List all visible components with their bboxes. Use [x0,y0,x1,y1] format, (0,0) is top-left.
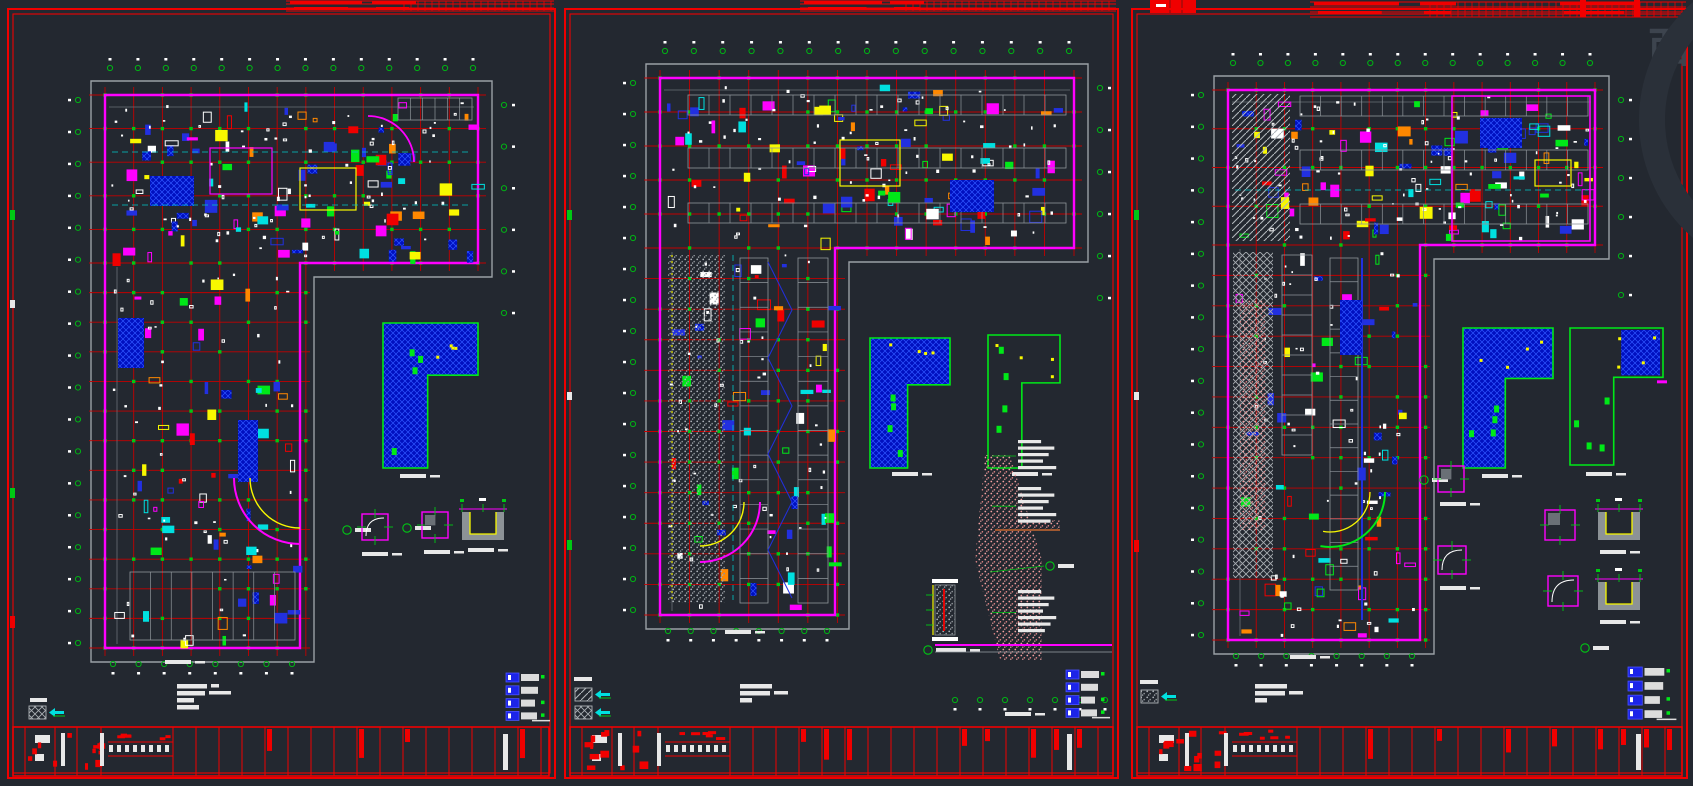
sheet-1-title-block [13,727,549,776]
drawing-svg [0,0,1693,786]
sheet-2 [565,9,1118,778]
sheet-1 [8,9,555,778]
sheet-2-annotations [567,95,1112,719]
sheet-2-title-block [570,727,1113,776]
cad-canvas: 西 [0,0,1693,786]
sheet-3-title-block [1137,727,1682,776]
sheet-3 [1132,9,1687,778]
